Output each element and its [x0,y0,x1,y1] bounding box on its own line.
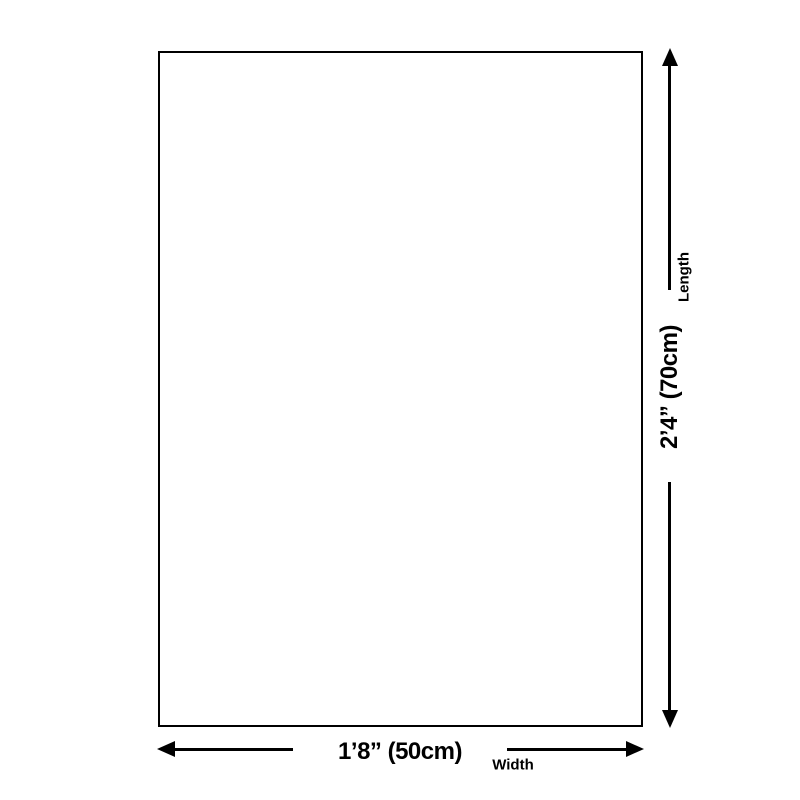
size-diagram: Length 2’4” (70cm) 1’8” (50cm) Width [0,0,800,800]
length-dimension-text: 2’4” (70cm) [656,325,684,449]
length-axis-label: Length [676,252,693,302]
product-outline [158,51,643,727]
width-dimension-text: 1’8” (50cm) [338,738,462,766]
length-arrow-down-icon [662,710,678,728]
length-arrow-line-top [668,60,671,290]
width-arrow-line-left [168,748,293,751]
width-arrow-right-icon [626,741,644,757]
length-arrow-line-bottom [668,482,671,715]
width-axis-label: Width [492,757,534,774]
width-arrow-line-right [507,748,632,751]
